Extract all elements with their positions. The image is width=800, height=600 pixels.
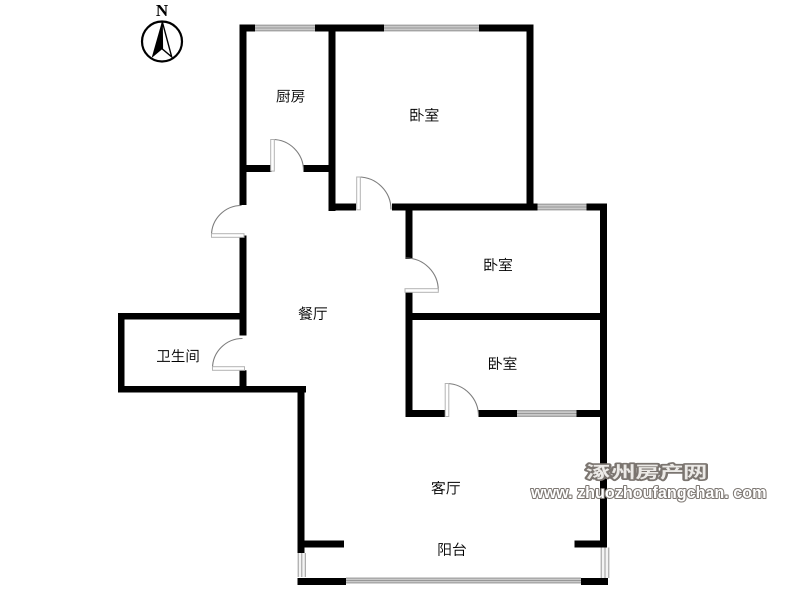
svg-text:www. zhuozhoufangchan. com: www. zhuozhoufangchan. com (530, 484, 766, 502)
svg-text:N: N (156, 1, 169, 20)
